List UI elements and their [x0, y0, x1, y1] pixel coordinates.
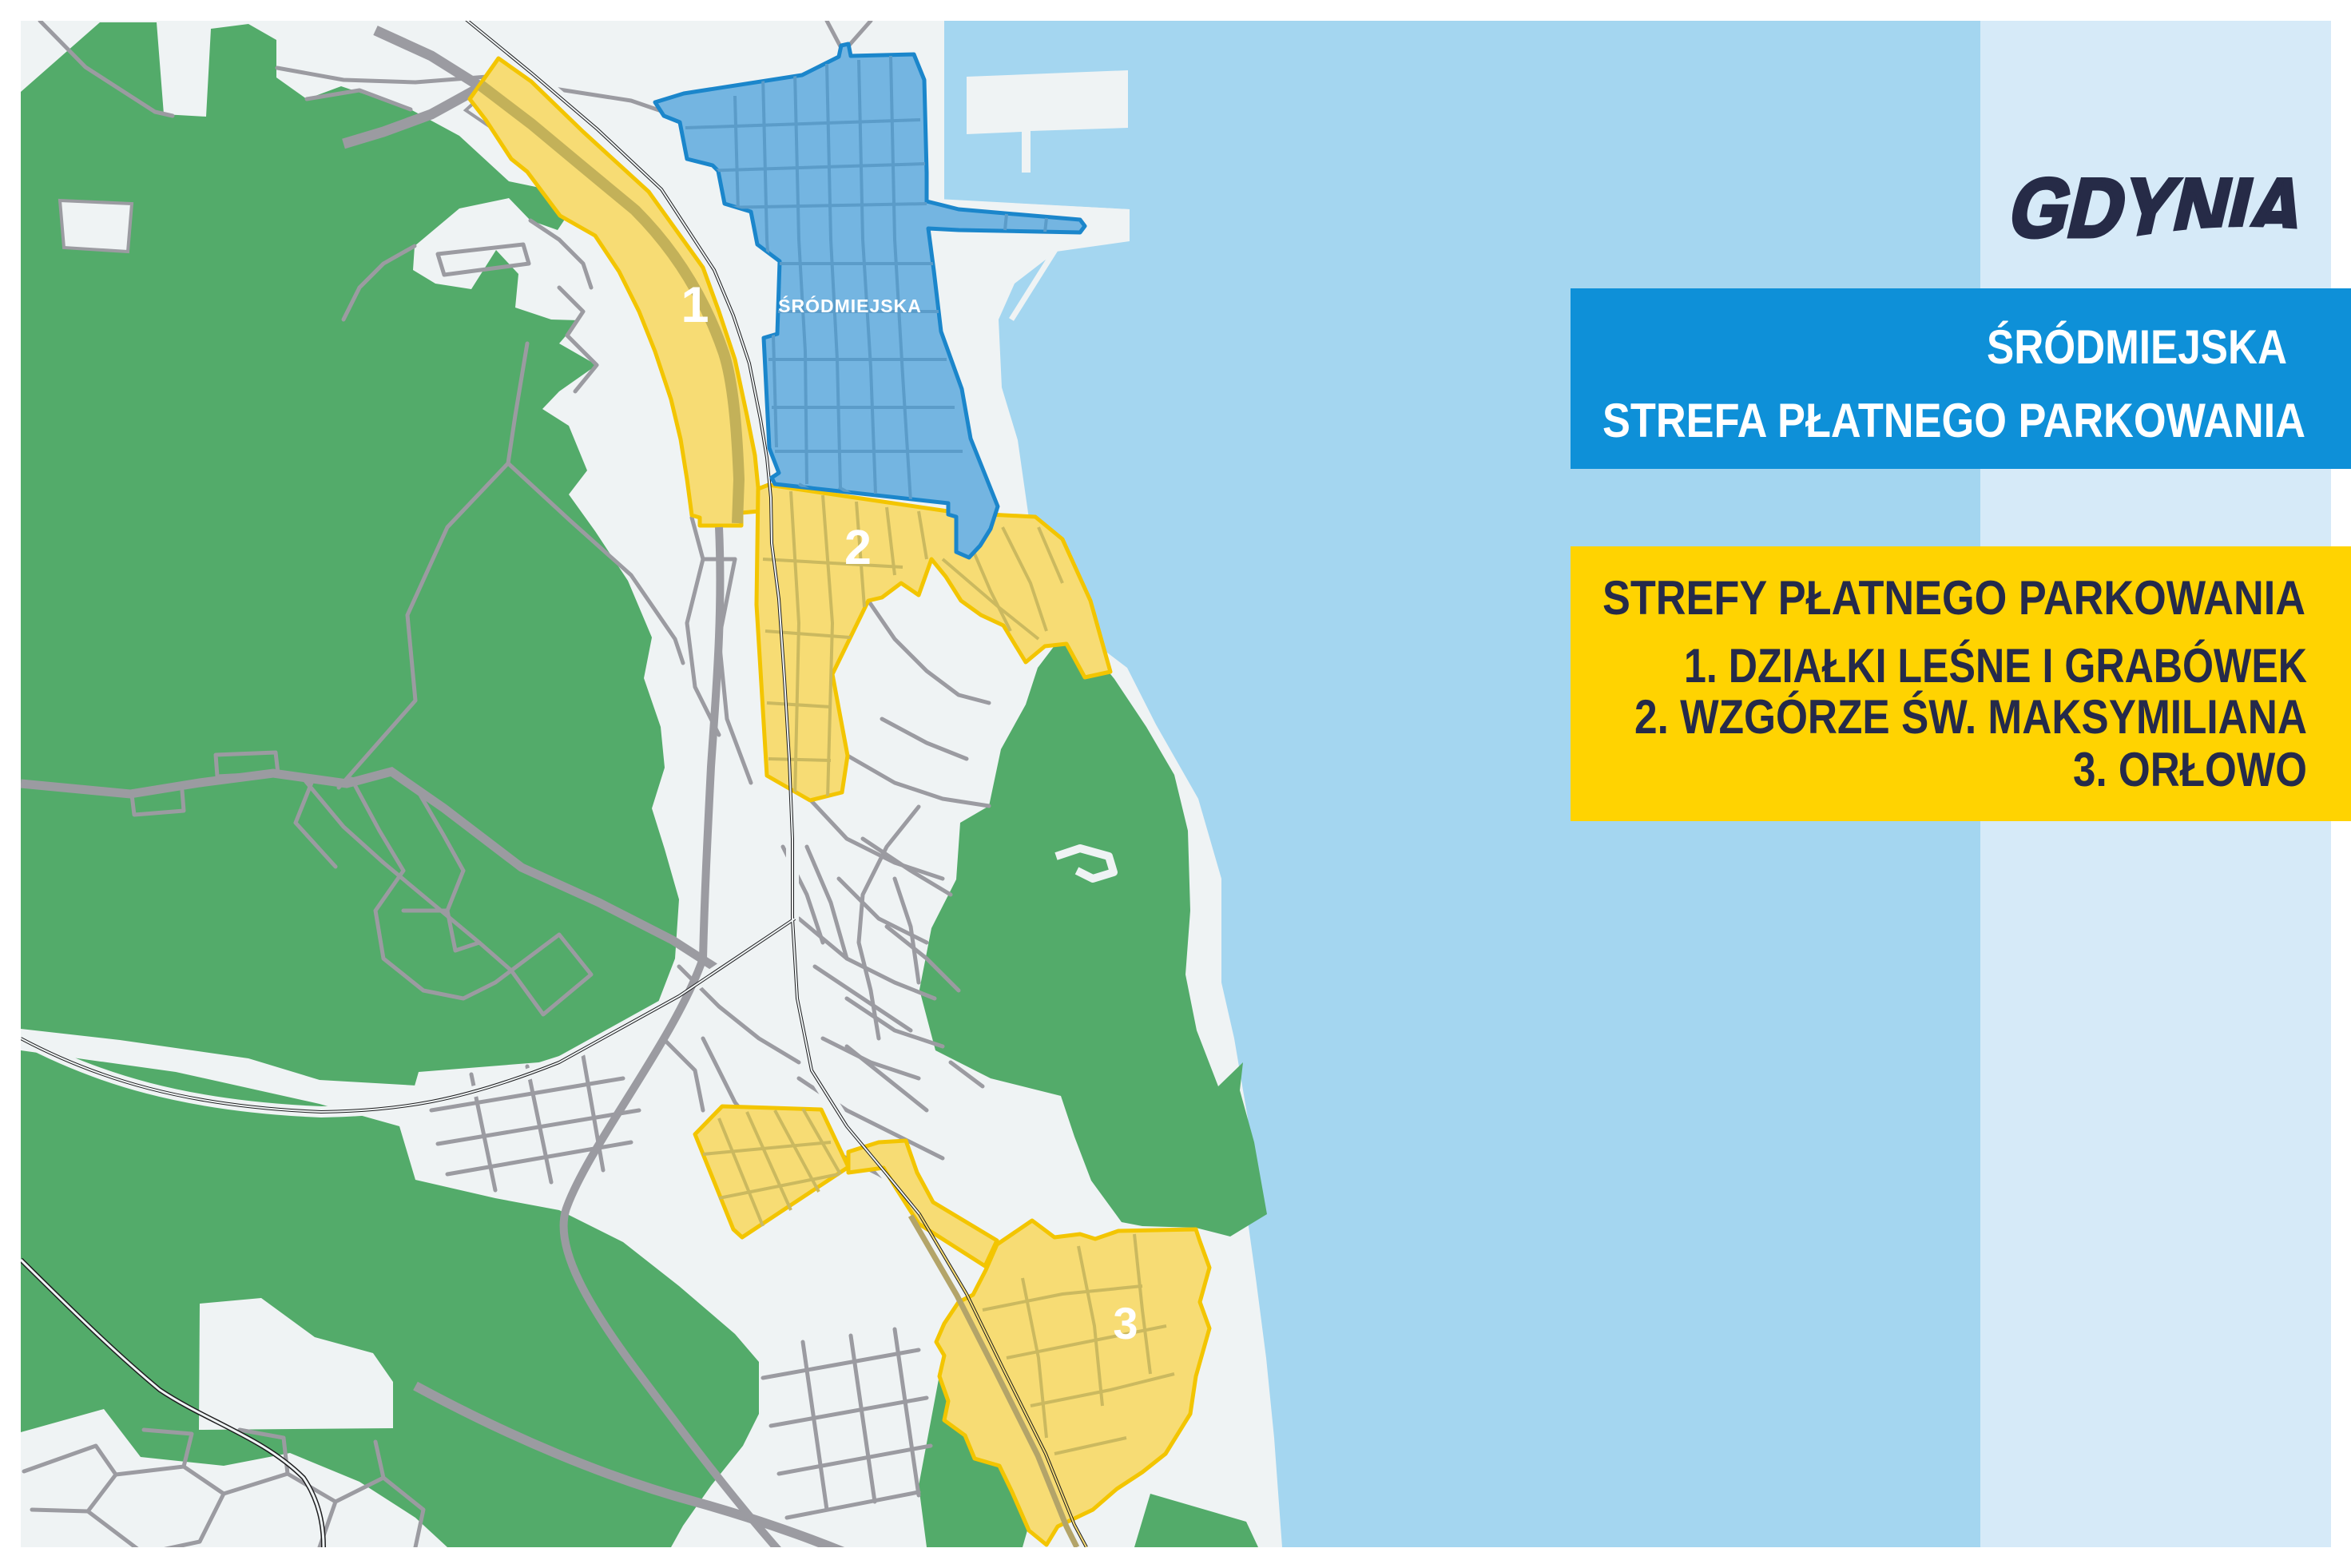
svg-text:ŚRÓDMIEJSKA: ŚRÓDMIEJSKA: [1987, 320, 2287, 374]
svg-text:1: 1: [681, 277, 709, 333]
svg-text:1. DZIAŁKI LEŚNE I GRABÓWEK: 1. DZIAŁKI LEŚNE I GRABÓWEK: [1684, 639, 2307, 693]
svg-text:STREFA PŁATNEGO PARKOWANIA: STREFA PŁATNEGO PARKOWANIA: [1602, 394, 2305, 447]
svg-text:2: 2: [844, 520, 872, 574]
svg-text:STREFY PŁATNEGO PARKOWANIA: STREFY PŁATNEGO PARKOWANIA: [1602, 571, 2305, 625]
svg-text:3: 3: [1113, 1298, 1138, 1348]
svg-text:3. ORŁOWO: 3. ORŁOWO: [2073, 743, 2307, 796]
svg-text:ŚRÓDMIEJSKA: ŚRÓDMIEJSKA: [778, 295, 922, 316]
svg-text:2. WZGÓRZE ŚW. MAKSYMILIANA: 2. WZGÓRZE ŚW. MAKSYMILIANA: [1634, 690, 2307, 744]
